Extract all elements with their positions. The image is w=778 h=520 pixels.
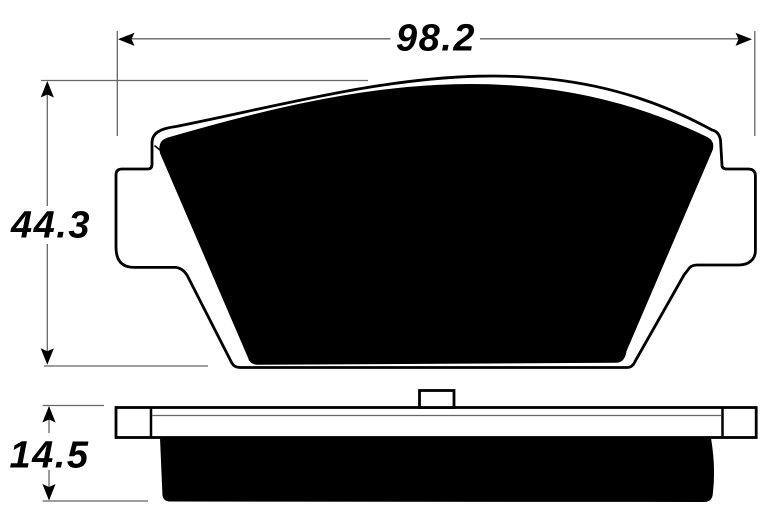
svg-text:14.5: 14.5 xyxy=(10,435,90,477)
svg-text:44.3: 44.3 xyxy=(10,205,91,247)
svg-text:98.2: 98.2 xyxy=(396,18,476,60)
